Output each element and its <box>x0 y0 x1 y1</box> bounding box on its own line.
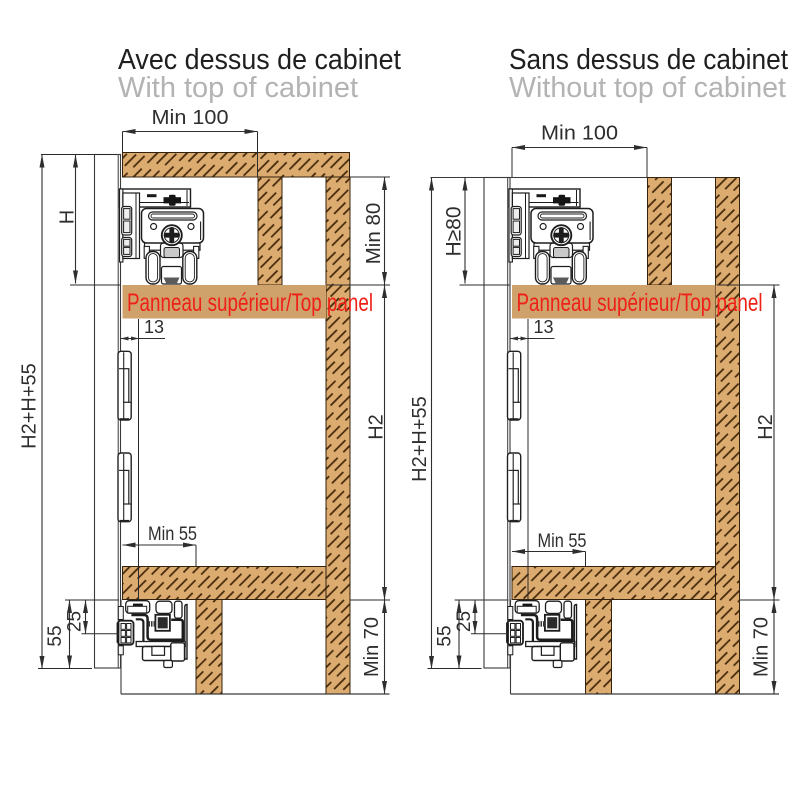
svg-text:Min 100: Min 100 <box>541 123 618 145</box>
svg-text:With top of cabinet: With top of cabinet <box>118 72 358 104</box>
svg-text:Min 55: Min 55 <box>148 523 197 545</box>
svg-text:13: 13 <box>144 317 164 337</box>
svg-text:Panneau supérieur/Top panel: Panneau supérieur/Top panel <box>127 289 373 317</box>
svg-text:H≥80: H≥80 <box>443 206 466 256</box>
svg-text:13: 13 <box>534 317 554 337</box>
svg-text:Panneau supérieur/Top panel: Panneau supérieur/Top panel <box>517 289 763 317</box>
svg-text:Min 70: Min 70 <box>751 617 773 677</box>
svg-text:25: 25 <box>65 611 86 632</box>
svg-text:55: 55 <box>435 625 456 646</box>
svg-text:H2+H+55: H2+H+55 <box>409 396 431 482</box>
svg-text:Min 80: Min 80 <box>362 203 385 265</box>
svg-text:Min 55: Min 55 <box>538 530 587 552</box>
svg-text:H2+H+55: H2+H+55 <box>19 363 41 449</box>
svg-text:25: 25 <box>454 611 475 632</box>
svg-text:Min 100: Min 100 <box>152 107 229 129</box>
svg-text:55: 55 <box>45 625 66 646</box>
svg-text:Min 70: Min 70 <box>361 617 383 677</box>
svg-text:Without top of cabinet: Without top of cabinet <box>509 72 786 104</box>
